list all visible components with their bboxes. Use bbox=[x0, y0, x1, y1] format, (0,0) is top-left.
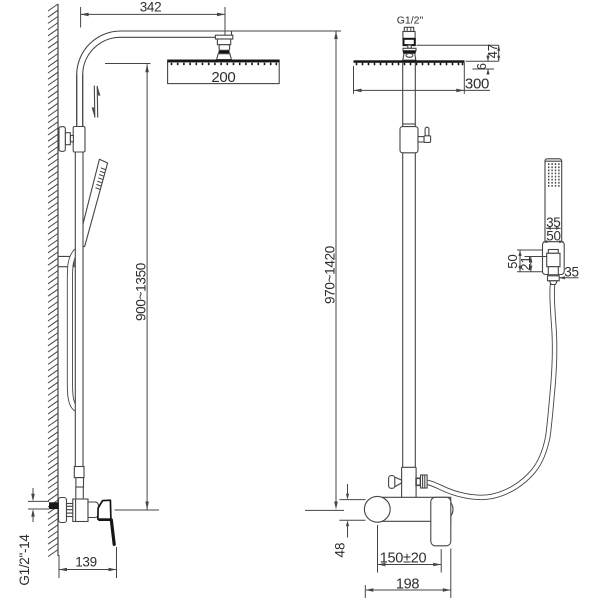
svg-text:970~1420: 970~1420 bbox=[323, 246, 338, 304]
svg-text:6: 6 bbox=[475, 63, 489, 70]
svg-text:198: 198 bbox=[396, 577, 420, 593]
svg-text:G1/2"-14: G1/2"-14 bbox=[17, 534, 32, 586]
svg-text:150±20: 150±20 bbox=[380, 550, 427, 566]
svg-text:139: 139 bbox=[75, 555, 97, 570]
svg-text:35: 35 bbox=[564, 265, 578, 280]
svg-text:900~1350: 900~1350 bbox=[133, 263, 148, 321]
svg-text:200: 200 bbox=[211, 69, 235, 86]
svg-text:21: 21 bbox=[518, 256, 533, 270]
svg-text:G1/2": G1/2" bbox=[397, 15, 424, 27]
svg-text:300: 300 bbox=[465, 76, 489, 93]
svg-text:342: 342 bbox=[140, 0, 162, 15]
svg-text:48: 48 bbox=[333, 542, 348, 557]
